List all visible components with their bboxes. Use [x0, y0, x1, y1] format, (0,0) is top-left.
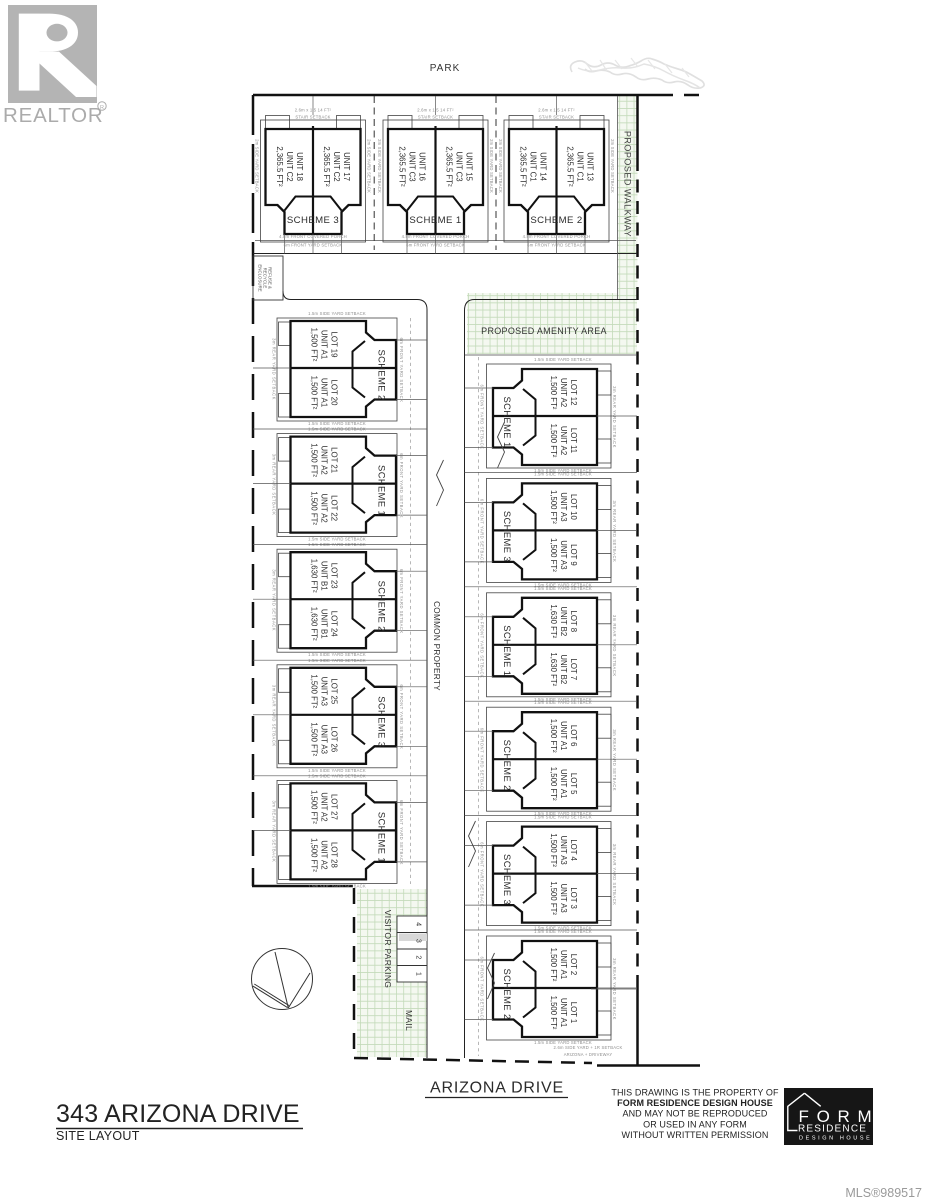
svg-text:2m SIDE YARD SETBACK: 2m SIDE YARD SETBACK [367, 139, 372, 193]
svg-text:LOT 23: LOT 23 [329, 563, 338, 589]
svg-text:UNIT A3: UNIT A3 [319, 725, 328, 754]
svg-text:AND MAY NOT BE REPRODUCED: AND MAY NOT BE REPRODUCED [622, 1109, 767, 1119]
svg-text:2m SIDE YARD SETBACK: 2m SIDE YARD SETBACK [489, 139, 494, 193]
svg-text:1,500 FT²: 1,500 FT² [549, 538, 558, 572]
svg-text:LOT 6: LOT 6 [569, 725, 578, 747]
svg-text:1: 1 [415, 972, 422, 976]
svg-text:UNIT A1: UNIT A1 [559, 998, 568, 1027]
svg-text:6m FRONT YARD SETBACK: 6m FRONT YARD SETBACK [399, 800, 404, 865]
svg-text:UNIT B2: UNIT B2 [559, 606, 568, 636]
svg-text:SCHEME 1: SCHEME 1 [502, 625, 513, 676]
svg-text:LOT 8: LOT 8 [569, 611, 578, 633]
svg-text:1,630 FT²: 1,630 FT² [309, 559, 318, 593]
svg-text:2.6m x 1.5 14 FT²: 2.6m x 1.5 14 FT² [417, 108, 454, 113]
svg-text:MLS®989517: MLS®989517 [845, 1186, 922, 1200]
svg-text:SCHEME 2: SCHEME 2 [377, 581, 388, 632]
svg-text:1,500 FT²: 1,500 FT² [309, 722, 318, 756]
svg-text:UNIT A3: UNIT A3 [559, 883, 568, 912]
svg-text:LOT 9: LOT 9 [569, 544, 578, 566]
svg-text:SCHEME 2: SCHEME 2 [502, 968, 513, 1019]
svg-text:SCHEME 2: SCHEME 2 [530, 215, 582, 226]
svg-text:2,365.5 FT²: 2,365.5 FT² [444, 146, 453, 187]
svg-text:FORM RESIDENCE DESIGN HOUSE: FORM RESIDENCE DESIGN HOUSE [617, 1098, 773, 1108]
svg-text:4.8m FRONT COVERED PORCH: 4.8m FRONT COVERED PORCH [523, 234, 591, 239]
svg-text:SCHEME 1: SCHEME 1 [377, 812, 388, 863]
svg-text:1,630 FT²: 1,630 FT² [309, 607, 318, 641]
svg-text:1,500 FT²: 1,500 FT² [309, 443, 318, 477]
svg-text:3m REAR YARD SETBACK: 3m REAR YARD SETBACK [612, 729, 617, 791]
svg-text:3m REAR YARD SETBACK: 3m REAR YARD SETBACK [612, 501, 617, 563]
svg-text:VISITOR PARKING: VISITOR PARKING [383, 910, 393, 988]
svg-text:3m REAR YARD SETBACK: 3m REAR YARD SETBACK [272, 801, 277, 863]
svg-text:UNIT B2: UNIT B2 [559, 654, 568, 684]
svg-text:UNIT A1: UNIT A1 [319, 330, 328, 359]
svg-text:3m REAR YARD SETBACK: 3m REAR YARD SETBACK [612, 615, 617, 677]
svg-text:1,500 FT²: 1,500 FT² [549, 996, 558, 1030]
svg-text:LOT 10: LOT 10 [569, 494, 578, 521]
svg-text:1,500 FT²: 1,500 FT² [309, 838, 318, 872]
svg-text:3m REAR YARD SETBACK: 3m REAR YARD SETBACK [612, 386, 617, 448]
svg-text:UNIT A3: UNIT A3 [559, 492, 568, 521]
svg-text:UNIT A3: UNIT A3 [559, 540, 568, 569]
svg-text:THIS DRAWING IS THE PROPERTY O: THIS DRAWING IS THE PROPERTY OF [611, 1088, 779, 1098]
svg-text:LOT 4: LOT 4 [569, 839, 578, 861]
svg-text:1.5m SIDE YARD SETBACK: 1.5m SIDE YARD SETBACK [534, 357, 592, 362]
svg-text:WITHOUT WRITTEN PERMISSION: WITHOUT WRITTEN PERMISSION [622, 1130, 769, 1140]
svg-text:UNIT A2: UNIT A2 [319, 493, 328, 522]
svg-text:RESIDENCE: RESIDENCE [798, 1124, 867, 1135]
svg-text:6m FRONT YARD SETBACK: 6m FRONT YARD SETBACK [399, 569, 404, 634]
svg-text:UNIT A2: UNIT A2 [559, 426, 568, 455]
svg-text:6m FRONT YARD SETBACK: 6m FRONT YARD SETBACK [406, 243, 465, 248]
svg-text:UNIT C2: UNIT C2 [332, 151, 341, 181]
svg-text:1,500 FT²: 1,500 FT² [309, 790, 318, 824]
svg-text:1,500 FT²: 1,500 FT² [549, 490, 558, 524]
svg-text:4.8m FRONT COVERED PORCH: 4.8m FRONT COVERED PORCH [402, 234, 470, 239]
svg-text:6m FRONT YARD SETBACK: 6m FRONT YARD SETBACK [480, 957, 485, 1022]
svg-text:LOT 28: LOT 28 [329, 842, 338, 868]
svg-text:UNIT A1: UNIT A1 [559, 950, 568, 979]
svg-text:1,500 FT²: 1,500 FT² [309, 491, 318, 525]
svg-text:UNIT 13: UNIT 13 [585, 152, 594, 181]
svg-text:UNIT A1: UNIT A1 [319, 378, 328, 407]
svg-text:1,500 FT²: 1,500 FT² [549, 881, 558, 915]
svg-text:2,365.5 FT²: 2,365.5 FT² [518, 146, 527, 187]
svg-text:UNIT A2: UNIT A2 [319, 792, 328, 821]
svg-text:UNIT C1: UNIT C1 [528, 151, 537, 181]
svg-text:6m FRONT YARD SETBACK: 6m FRONT YARD SETBACK [480, 728, 485, 793]
svg-text:1.5m SIDE YARD SETBACK: 1.5m SIDE YARD SETBACK [308, 311, 366, 316]
svg-text:1.5m SIDE YARD SETBACK: 1.5m SIDE YARD SETBACK [308, 768, 366, 773]
svg-text:SCHEME 1: SCHEME 1 [502, 396, 513, 447]
svg-text:COMMON PROPERTY: COMMON PROPERTY [432, 601, 441, 691]
svg-text:DESIGN HOUSE: DESIGN HOUSE [799, 1136, 872, 1142]
svg-text:1,630 FT²: 1,630 FT² [549, 652, 558, 686]
svg-text:PROPOSED AMENITY AREA: PROPOSED AMENITY AREA [481, 326, 607, 336]
svg-text:ARIZONA DRIVE: ARIZONA DRIVE [430, 1080, 564, 1097]
svg-text:LOT 11: LOT 11 [569, 428, 578, 453]
svg-text:3m REAR YARD SETBACK: 3m REAR YARD SETBACK [272, 338, 277, 400]
svg-text:LOT 26: LOT 26 [329, 726, 338, 752]
svg-text:2m SIDE YARD SETBACK: 2m SIDE YARD SETBACK [377, 139, 382, 193]
svg-text:2m SIDE YARD SETBACK: 2m SIDE YARD SETBACK [255, 139, 260, 193]
svg-text:2,365.5 FT²: 2,365.5 FT² [565, 146, 574, 187]
svg-text:UNIT 14: UNIT 14 [538, 152, 547, 182]
svg-text:2: 2 [415, 955, 422, 959]
svg-text:REALTOR: REALTOR [3, 104, 104, 127]
svg-text:LOT 3: LOT 3 [569, 887, 578, 909]
svg-text:2,365.5 FT²: 2,365.5 FT² [397, 146, 406, 187]
svg-text:STAIR SETBACK: STAIR SETBACK [539, 115, 574, 120]
svg-text:343 ARIZONA DRIVE: 343 ARIZONA DRIVE [56, 1100, 300, 1128]
svg-text:UNIT A1: UNIT A1 [559, 721, 568, 750]
svg-text:STAIR SETBACK: STAIR SETBACK [418, 115, 453, 120]
svg-text:3m REAR YARD SETBACK: 3m REAR YARD SETBACK [272, 685, 277, 747]
svg-text:1,500 FT²: 1,500 FT² [549, 424, 558, 458]
svg-text:UNIT 16: UNIT 16 [417, 152, 426, 181]
svg-text:UNIT 15: UNIT 15 [464, 152, 473, 182]
svg-text:2.6m x 1.5 14 FT²: 2.6m x 1.5 14 FT² [538, 108, 575, 113]
svg-text:6m FRONT YARD SETBACK: 6m FRONT YARD SETBACK [480, 499, 485, 564]
svg-text:2m SIDE YARD SETBACK: 2m SIDE YARD SETBACK [498, 139, 503, 193]
svg-text:6m FRONT YARD SETBACK: 6m FRONT YARD SETBACK [480, 842, 485, 907]
svg-text:SITE LAYOUT: SITE LAYOUT [56, 1129, 140, 1143]
svg-text:6m FRONT YARD SETBACK: 6m FRONT YARD SETBACK [527, 243, 586, 248]
svg-text:2m SIDE YARD SETBACK: 2m SIDE YARD SETBACK [610, 139, 615, 193]
svg-text:1,500 FT²: 1,500 FT² [549, 376, 558, 410]
svg-text:1,500 FT²: 1,500 FT² [549, 719, 558, 753]
svg-text:4: 4 [415, 922, 422, 926]
svg-text:UNIT A2: UNIT A2 [559, 378, 568, 407]
svg-text:6m FRONT YARD SETBACK: 6m FRONT YARD SETBACK [480, 613, 485, 678]
svg-text:LOT 12: LOT 12 [569, 380, 578, 406]
svg-text:R: R [100, 105, 104, 111]
svg-text:UNIT C1: UNIT C1 [575, 151, 584, 181]
svg-text:UNIT 17: UNIT 17 [342, 152, 351, 181]
svg-text:1,500 FT²: 1,500 FT² [549, 948, 558, 982]
svg-text:2,365.5 FT²: 2,365.5 FT² [275, 146, 284, 187]
svg-text:SCHEME 2: SCHEME 2 [377, 349, 388, 400]
svg-text:6m FRONT YARD SETBACK: 6m FRONT YARD SETBACK [399, 453, 404, 518]
svg-text:ENCLOSURE: ENCLOSURE [257, 264, 262, 291]
svg-text:1.5m SIDE YARD SETBACK: 1.5m SIDE YARD SETBACK [308, 652, 366, 657]
svg-text:UNIT A3: UNIT A3 [559, 835, 568, 864]
svg-text:ARIZONA + DRIVEWAY: ARIZONA + DRIVEWAY [564, 1052, 613, 1057]
svg-text:MAIL: MAIL [404, 1010, 414, 1031]
svg-text:UNIT B1: UNIT B1 [319, 609, 328, 639]
svg-text:UNIT 18: UNIT 18 [295, 152, 304, 181]
svg-text:1.5m SIDE YARD SETBACK: 1.5m SIDE YARD SETBACK [308, 537, 366, 542]
svg-text:4.8m FRONT COVERED PORCH: 4.8m FRONT COVERED PORCH [279, 234, 347, 239]
svg-text:UNIT B1: UNIT B1 [319, 561, 328, 591]
svg-text:3m REAR YARD SETBACK: 3m REAR YARD SETBACK [272, 454, 277, 516]
svg-text:3: 3 [415, 939, 422, 943]
svg-text:UNIT A3: UNIT A3 [319, 677, 328, 706]
svg-text:2.6m SIDE YARD + 1R SETBACK: 2.6m SIDE YARD + 1R SETBACK [554, 1045, 623, 1050]
svg-text:SCHEME 1: SCHEME 1 [377, 465, 388, 516]
svg-text:LOT 2: LOT 2 [569, 954, 578, 976]
svg-text:1,500 FT²: 1,500 FT² [309, 376, 318, 410]
svg-text:LOT 1: LOT 1 [569, 1002, 578, 1024]
svg-text:1,500 FT²: 1,500 FT² [309, 674, 318, 708]
svg-text:PARK: PARK [430, 63, 461, 74]
svg-text:UNIT A2: UNIT A2 [319, 445, 328, 474]
svg-text:UNIT A2: UNIT A2 [319, 840, 328, 869]
svg-text:1,500 FT²: 1,500 FT² [549, 833, 558, 867]
svg-text:LOT 19: LOT 19 [329, 332, 338, 358]
svg-text:3m REAR YARD SETBACK: 3m REAR YARD SETBACK [272, 569, 277, 631]
svg-text:SCHEME 2: SCHEME 2 [502, 740, 513, 791]
svg-text:UNIT C2: UNIT C2 [285, 151, 294, 181]
svg-text:UNIT C3: UNIT C3 [407, 151, 416, 181]
svg-text:UNIT C3: UNIT C3 [454, 151, 463, 181]
svg-text:SCHEME 3: SCHEME 3 [502, 511, 513, 562]
svg-text:2,365.5 FT²: 2,365.5 FT² [322, 146, 331, 187]
svg-text:UNIT A1: UNIT A1 [559, 769, 568, 798]
svg-text:LOT 7: LOT 7 [569, 659, 578, 681]
svg-text:1,500 FT²: 1,500 FT² [309, 328, 318, 362]
svg-text:6m FRONT YARD SETBACK: 6m FRONT YARD SETBACK [399, 684, 404, 749]
svg-text:SCHEME 3: SCHEME 3 [377, 696, 388, 747]
svg-text:SCHEME 3: SCHEME 3 [287, 215, 339, 226]
svg-text:STAIR SETBACK: STAIR SETBACK [295, 115, 330, 120]
svg-text:LOT 5: LOT 5 [569, 773, 578, 795]
svg-text:SCHEME 3: SCHEME 3 [502, 854, 513, 905]
svg-text:6m FRONT YARD SETBACK: 6m FRONT YARD SETBACK [284, 243, 343, 248]
svg-text:1,630 FT²: 1,630 FT² [549, 604, 558, 638]
svg-text:1,500 FT²: 1,500 FT² [549, 767, 558, 801]
svg-text:LOT 27: LOT 27 [329, 794, 338, 820]
svg-text:LOT 24: LOT 24 [329, 611, 338, 638]
svg-text:6m FRONT YARD SETBACK: 6m FRONT YARD SETBACK [480, 385, 485, 450]
svg-text:6m FRONT YARD SETBACK: 6m FRONT YARD SETBACK [399, 338, 404, 403]
svg-text:1.5m SIDE YARD SETBACK: 1.5m SIDE YARD SETBACK [308, 421, 366, 426]
svg-text:LOT 25: LOT 25 [329, 678, 338, 705]
svg-text:LOT 22: LOT 22 [329, 495, 338, 521]
svg-text:1.5m SIDE YARD SETBACK: 1.5m SIDE YARD SETBACK [308, 883, 366, 888]
svg-text:2.6m x 1.5 14 FT²: 2.6m x 1.5 14 FT² [295, 108, 332, 113]
svg-text:SCHEME 1: SCHEME 1 [409, 215, 461, 226]
svg-text:LOT 21: LOT 21 [329, 447, 338, 473]
svg-text:LOT 20: LOT 20 [329, 380, 338, 407]
svg-text:PROPOSED WALKWAY: PROPOSED WALKWAY [622, 131, 632, 237]
svg-text:OR USED IN ANY FORM: OR USED IN ANY FORM [643, 1119, 747, 1129]
svg-text:3m REAR YARD SETBACK: 3m REAR YARD SETBACK [612, 844, 617, 906]
